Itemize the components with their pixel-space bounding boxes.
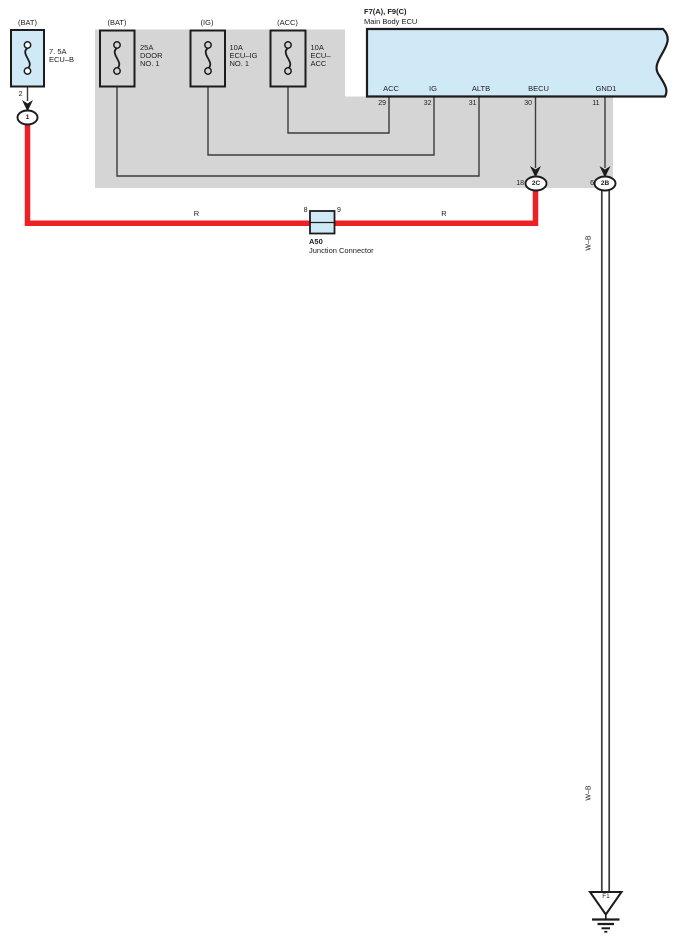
ecu-title: F7(A), F9(C) (364, 8, 407, 16)
junction-pin-9: 9 (337, 207, 341, 215)
connector-2b-pin-num: 6 (574, 180, 594, 188)
fuse-top-label-acc: (ACC) (277, 19, 298, 27)
fuse-rating-door: 25A DOOR NO. 1 (140, 44, 163, 68)
fuse-rating-ecu-b: 7. 5A ECU–B (49, 48, 74, 64)
wire-label-wb-lower: W–B (586, 785, 593, 800)
junction-name: Junction Connector (309, 247, 374, 255)
wire-label-r-left: R (194, 210, 199, 218)
ecu-subtitle: Main Body ECU (364, 18, 417, 26)
ecu-pin-num-ig: 32 (412, 100, 432, 108)
main-body-ecu-box (367, 29, 668, 97)
junction-id: A50 (309, 238, 323, 246)
ecu-pin-num-altb: 31 (457, 100, 477, 108)
wire-label-r-right: R (441, 210, 446, 218)
diagram-graphics (0, 0, 683, 940)
connector-1-id: 1 (18, 114, 38, 121)
ecu-pin-num-acc: 29 (366, 100, 386, 108)
fuse-top-label-ig: (IG) (201, 19, 214, 27)
fuse-top-label-door: (BAT) (107, 19, 126, 27)
fuse-top-label-ecu-b: (BAT) (18, 19, 37, 27)
junction-connector-box (310, 211, 335, 234)
fuse-rating-ig: 10A ECU–IG NO. 1 (230, 44, 258, 68)
ecu-pin-num-gnd1: 11 (580, 100, 600, 108)
ecu-pin-num-becu: 30 (512, 100, 532, 108)
connector-2b-id: 2B (595, 180, 615, 187)
junction-pin-8: 8 (288, 207, 308, 215)
ecu-pin-name-altb: ALTB (472, 85, 490, 93)
ecu-pin-name-ig: IG (429, 85, 437, 93)
connector-2c-pin-num: 18 (504, 180, 524, 188)
ecu-pin-name-becu: BECU (528, 85, 549, 93)
wire-label-wb-upper: W–B (586, 235, 593, 250)
connector-2c-id: 2C (526, 180, 546, 187)
ground-id: F1 (602, 893, 610, 901)
wiring-diagram: (BAT) (BAT) (IG) (ACC) 7. 5A ECU–B 25A D… (0, 0, 683, 940)
ecu-pin-name-gnd1: GND1 (596, 85, 617, 93)
fuse-rating-acc: 10A ECU– ACC (311, 44, 331, 68)
connector-1-pin-num: 2 (11, 91, 23, 99)
ecu-pin-name-acc: ACC (383, 85, 399, 93)
